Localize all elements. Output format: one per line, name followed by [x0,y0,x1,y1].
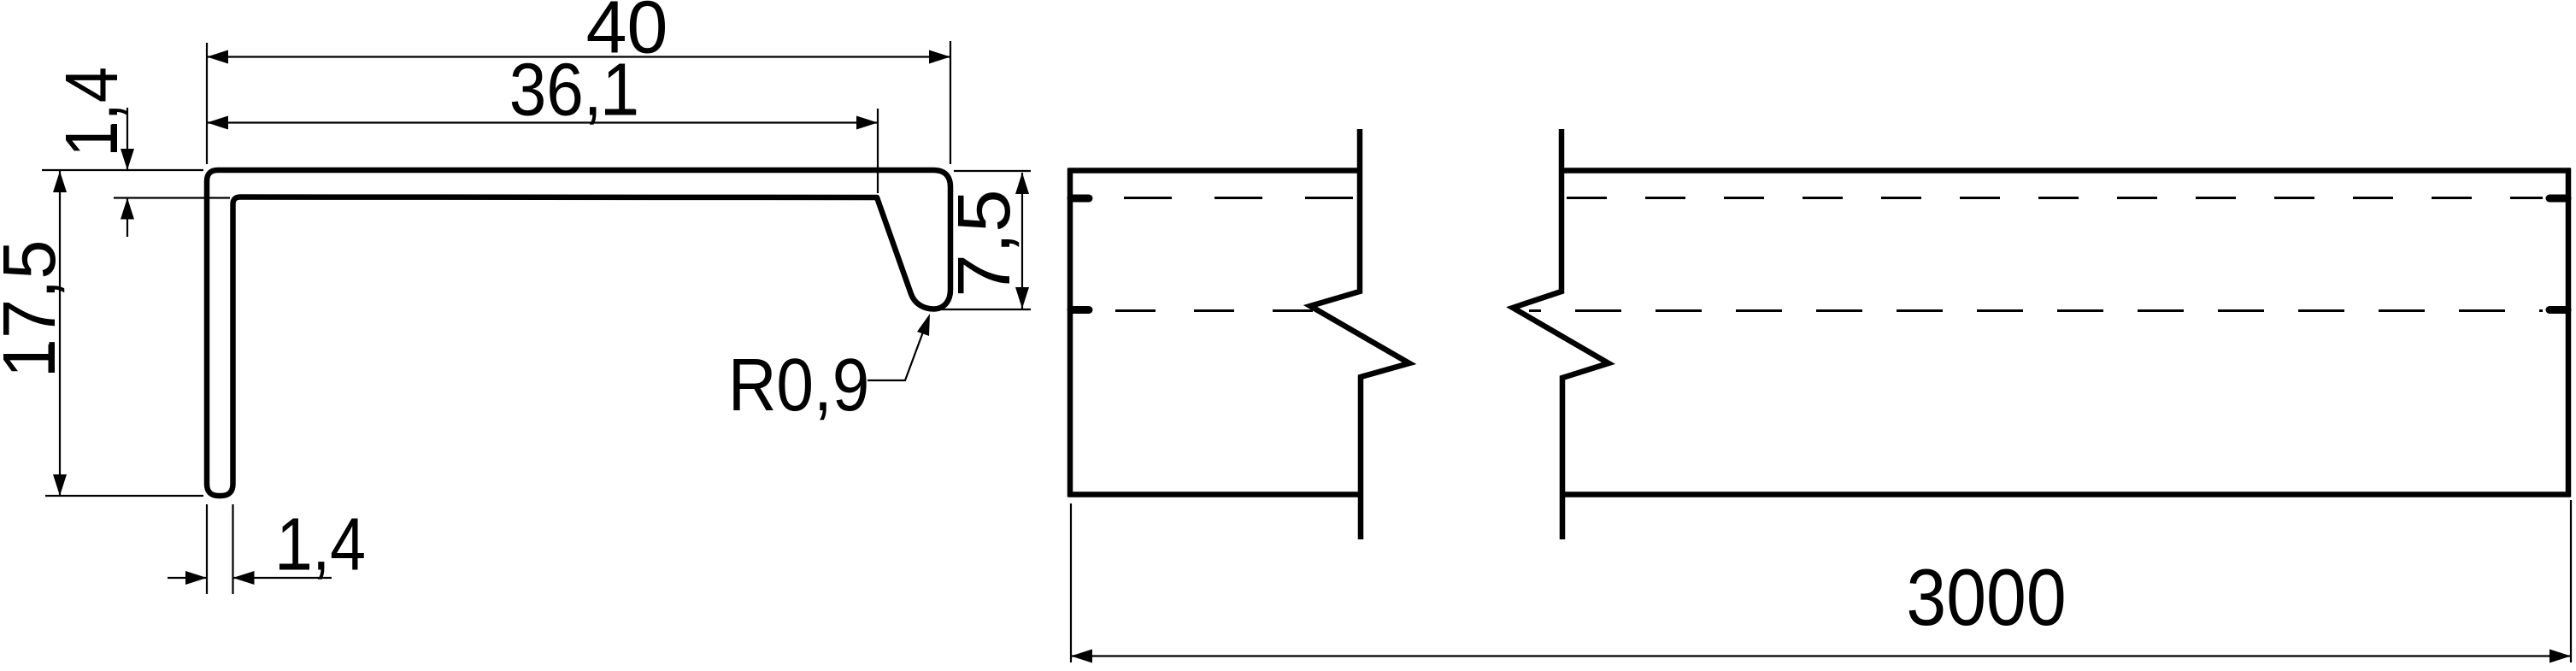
svg-text:1,4: 1,4 [50,67,133,157]
svg-text:1,4: 1,4 [276,503,366,586]
svg-text:3000: 3000 [1906,552,2066,642]
svg-text:7,5: 7,5 [942,189,1026,297]
svg-text:17,5: 17,5 [0,240,71,379]
svg-text:R0,9: R0,9 [728,343,870,427]
svg-text:36,1: 36,1 [509,48,639,132]
